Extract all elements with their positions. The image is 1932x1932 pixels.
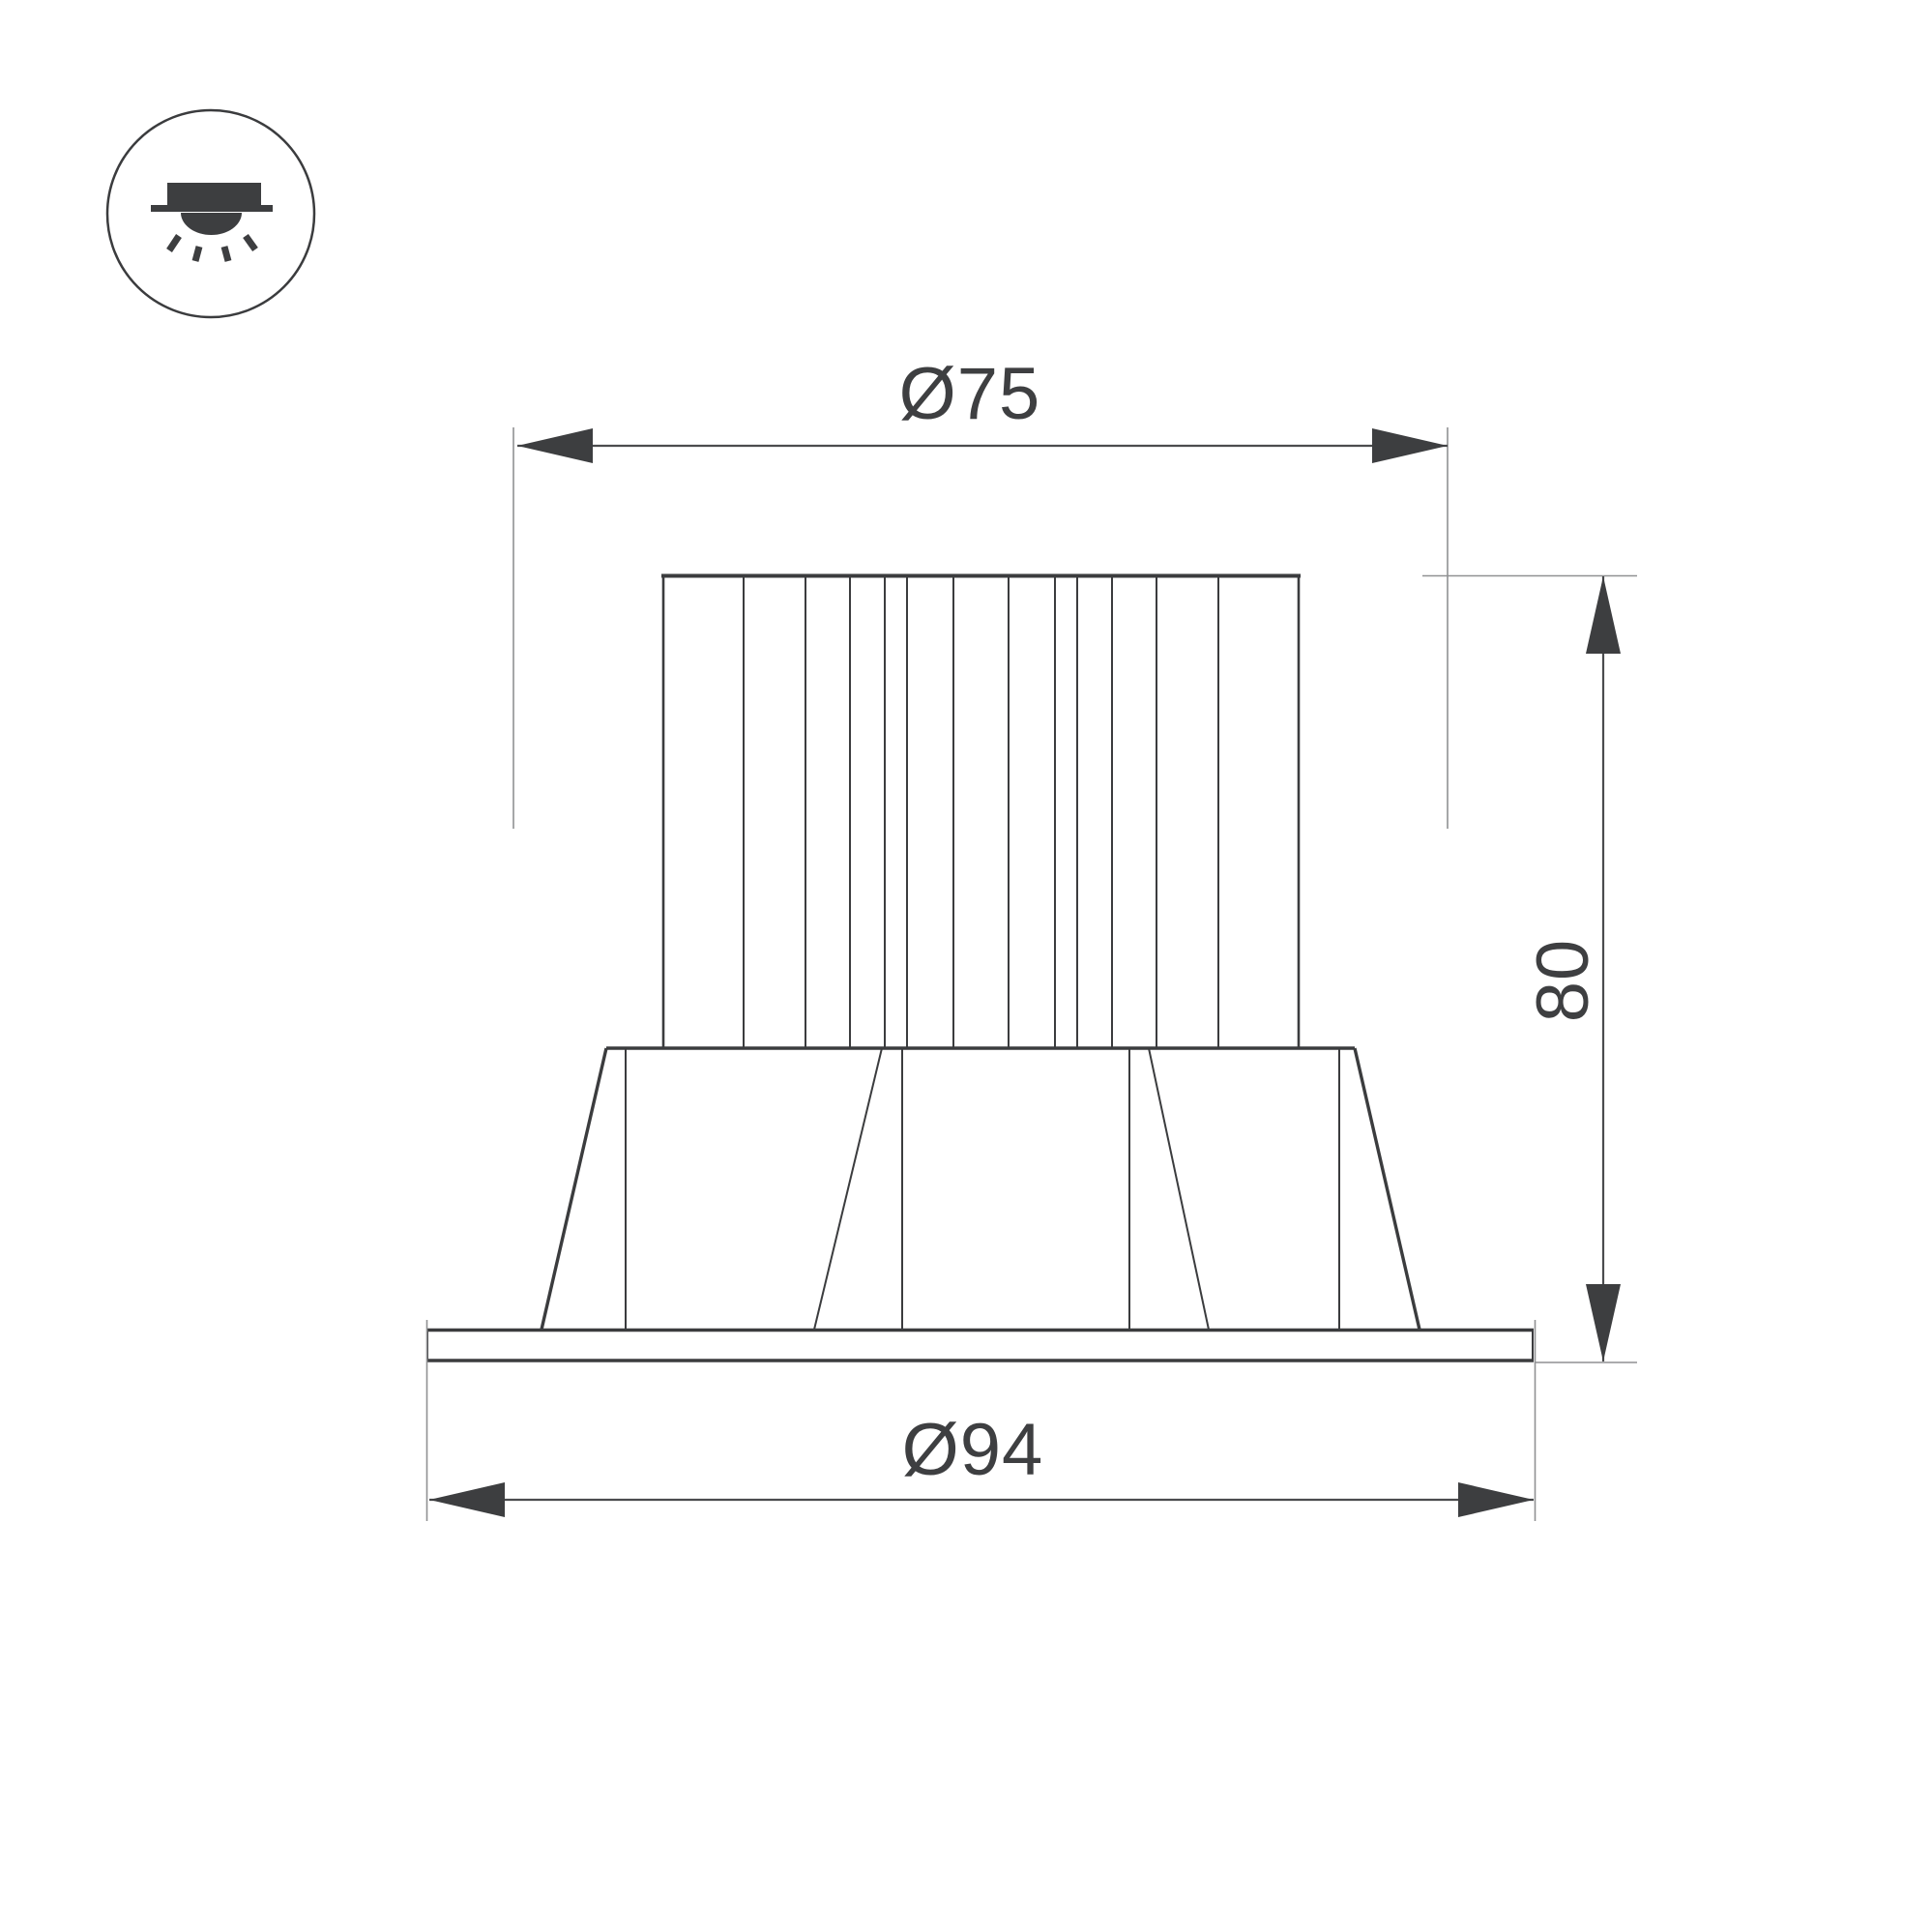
dimension-label-top-diameter: Ø75 bbox=[899, 353, 1041, 435]
body-right-edge bbox=[1355, 1048, 1420, 1330]
dimension-label-height: 80 bbox=[1522, 939, 1604, 1023]
dimension-drawing-page: Ø75 80 Ø94 bbox=[0, 0, 1932, 1932]
dimension-bottom-diameter: Ø94 bbox=[427, 1320, 1536, 1521]
arrowhead-left bbox=[429, 1482, 505, 1517]
arrowhead-left bbox=[517, 428, 593, 463]
dimension-top-diameter: Ø75 bbox=[513, 353, 1448, 829]
dimension-label-bottom-diameter: Ø94 bbox=[902, 1409, 1044, 1491]
body-left-edge bbox=[542, 1048, 606, 1330]
arrowhead-right bbox=[1372, 428, 1448, 463]
mounting-flange bbox=[426, 1330, 1534, 1361]
recessed-downlight-icon bbox=[107, 110, 314, 317]
body-cone bbox=[542, 1048, 1420, 1330]
arrowhead-up bbox=[1586, 576, 1621, 654]
dimension-height: 80 bbox=[1422, 576, 1637, 1363]
icon-fixture-body bbox=[167, 183, 261, 207]
arrowhead-down bbox=[1586, 1284, 1621, 1361]
arrowhead-right bbox=[1458, 1482, 1534, 1517]
heatsink-fins bbox=[661, 575, 1301, 1048]
icon-ceiling-line bbox=[151, 205, 273, 212]
drawing-svg: Ø75 80 Ø94 bbox=[0, 0, 1932, 1932]
